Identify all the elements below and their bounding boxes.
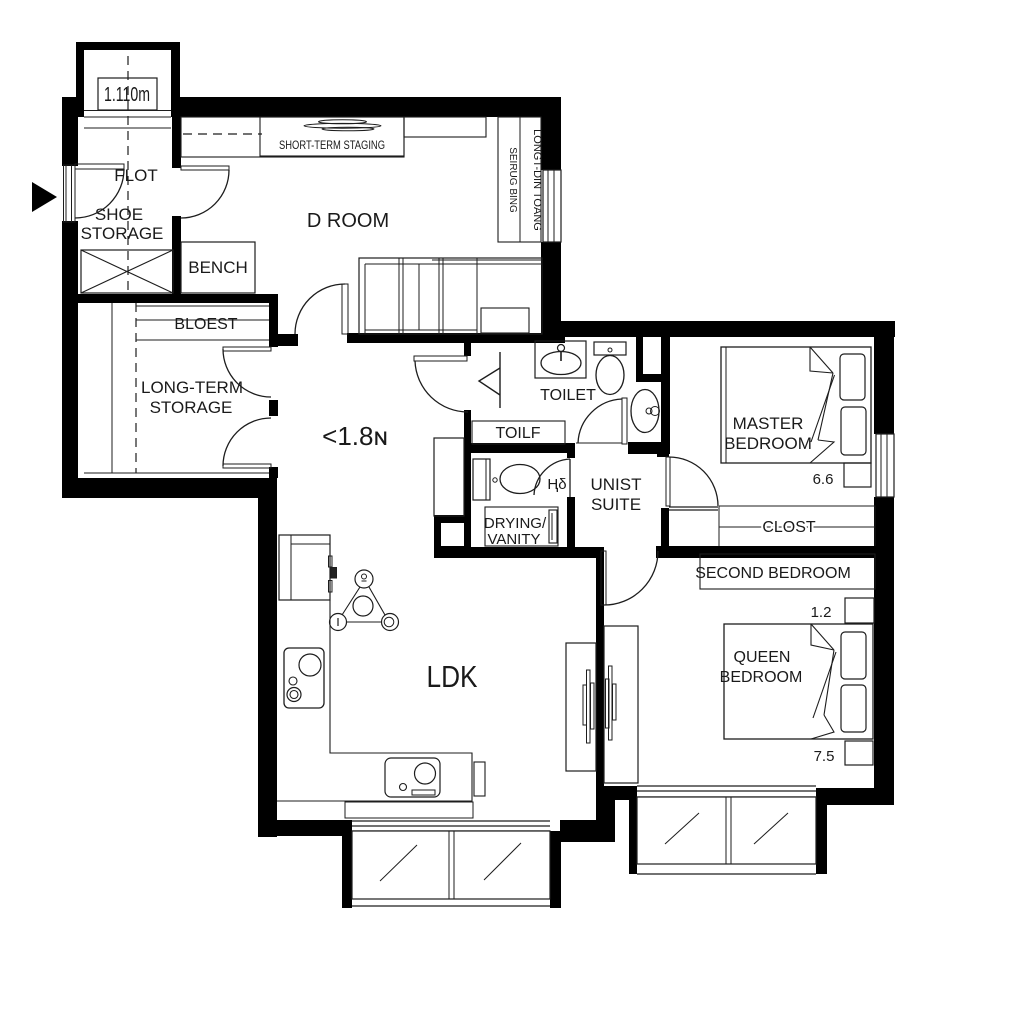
svg-text:BLOEST: BLOEST [174,316,237,333]
svg-text:QUEEN: QUEEN [734,649,791,666]
svg-text:TOILET: TOILET [540,387,596,404]
svg-text:Ңδ: Ңδ [547,476,566,493]
svg-text:6.6: 6.6 [813,471,834,488]
svg-text:DRYING/: DRYING/ [484,515,547,532]
svg-text:SECOND BEDROOM: SECOND BEDROOM [695,565,851,582]
svg-text:MASTER: MASTER [733,414,804,433]
svg-text:1.2: 1.2 [811,604,832,621]
svg-text:LONGT-DIN TOANG: LONGT-DIN TOANG [531,129,543,231]
svg-text:SEIRUG BING: SEIRUG BING [507,147,518,213]
svg-text:1.110m: 1.110m [104,84,150,106]
svg-text:SHORT-TERM STAGING: SHORT-TERM STAGING [279,138,385,152]
svg-text:BENCH: BENCH [188,258,248,277]
svg-text:LDK: LDK [427,659,478,694]
svg-text:FLOT: FLOT [114,166,157,185]
svg-text:SUITE: SUITE [591,495,641,514]
svg-text:SHOE: SHOE [95,205,143,224]
svg-text:STORAGE: STORAGE [150,398,233,417]
svg-text:BEDROOM: BEDROOM [720,669,803,686]
svg-text:<1.8ɴ: <1.8ɴ [322,421,388,451]
svg-text:UNIST: UNIST [591,475,642,494]
svg-text:VANITY: VANITY [487,531,540,548]
svg-text:D ROOM: D ROOM [307,210,389,232]
svg-text:BEDROOM: BEDROOM [724,434,812,453]
svg-text:LONG-TERM: LONG-TERM [141,378,243,397]
svg-text:7.5: 7.5 [814,748,835,765]
svg-text:TOILF: TOILF [495,425,540,442]
svg-text:CLOST: CLOST [762,519,816,536]
svg-text:STORAGE: STORAGE [81,224,164,243]
